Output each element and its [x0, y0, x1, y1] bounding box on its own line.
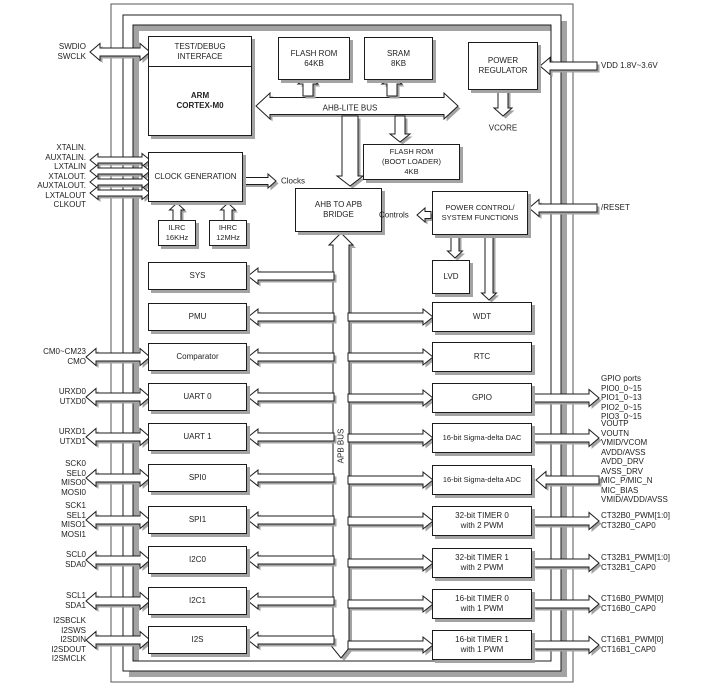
ahb-bus-label: AHB-LITE BUS [323, 104, 378, 113]
block-i2c0-label: I2C0 [189, 555, 206, 565]
pin-label: CT16B1_CAP0 [601, 645, 663, 655]
block-timer16-0-label: 16-bit TIMER 0 with 1 PWM [455, 594, 509, 614]
block-uart1-label: UART 1 [183, 432, 211, 442]
block-uart1: UART 1 [148, 423, 247, 451]
block-clock-generation: CLOCK GENERATION [148, 152, 243, 202]
block-timer32-0: 32-bit TIMER 0 with 2 PWM [432, 506, 532, 536]
pin-group-spi1: SCK1 SEL1 MISO1 MOSI1 [0, 501, 86, 539]
block-power-regulator: POWER REGULATOR [468, 42, 538, 90]
pin-label: SCK1 [0, 501, 86, 511]
block-sys-label: SYS [189, 271, 205, 281]
block-i2s: I2S [148, 626, 247, 654]
pin-label: CLKOUT [0, 200, 86, 210]
pin-label: XTALIN. [0, 143, 86, 153]
pin-label: MIC_P/MIC_N [601, 476, 668, 486]
pin-label: MIC_BIAS [601, 486, 668, 496]
pin-label: MOSI1 [0, 530, 86, 540]
pin-label: AVSS_DRV [601, 467, 668, 477]
pin-label: CM0~CM23 [0, 347, 86, 357]
pin-group-vdd: VDD 1.8V~3.6V [601, 61, 658, 71]
block-rtc: RTC [432, 342, 532, 372]
block-cpu: TEST/DEBUG INTERFACE ARM CORTEX-M0 [148, 36, 252, 136]
pin-group-comparator: CM0~CM23 CMO [0, 347, 86, 366]
pin-group-ct32b0: CT32B0_PWM[1:0] CT32B0_CAP0 [601, 511, 670, 530]
block-test-debug-label: TEST/DEBUG INTERFACE [149, 37, 251, 67]
pin-label: VMID/VCOM [601, 438, 668, 448]
pin-label: SCL0 [0, 550, 86, 560]
block-gpio: GPIO [432, 383, 532, 413]
pin-label: UTXD1 [0, 437, 86, 447]
pin-label: CT16B1_PWM[0] [601, 635, 663, 645]
clocks-label: Clocks [281, 177, 305, 186]
block-timer16-0: 16-bit TIMER 0 with 1 PWM [432, 589, 532, 619]
pin-group-i2c1: SCL1 SDA1 [0, 591, 86, 610]
block-ilrc-label: ILRC 16KHz [166, 223, 189, 243]
block-uart0-label: UART 0 [183, 392, 211, 402]
pin-label: AUXTALIN. [0, 153, 86, 163]
block-flash-rom-label: FLASH ROM 64KB [291, 49, 338, 69]
pin-label: CT32B1_CAP0 [601, 563, 670, 573]
pin-label: PIO2_0~15 [601, 403, 642, 413]
block-i2c1-label: I2C1 [189, 596, 206, 606]
block-boot-rom-label: FLASH ROM (BOOT LOADER) 4KB [382, 147, 441, 177]
block-clock-generation-label: CLOCK GENERATION [154, 172, 236, 182]
block-spi0: SPI0 [148, 464, 247, 492]
block-timer16-1-label: 16-bit TIMER 1 with 1 PWM [455, 635, 509, 655]
block-uart0: UART 0 [148, 383, 247, 411]
pin-label: SEL1 [0, 511, 86, 521]
block-cpu-label: ARM CORTEX-M0 [149, 67, 251, 135]
block-ihrc: IHRC 12MHz [209, 220, 247, 246]
block-power-control: POWER CONTROL/ SYSTEM FUNCTIONS [432, 191, 528, 235]
pin-label: I2SBCLK [0, 616, 86, 626]
block-timer32-1: 32-bit TIMER 1 with 2 PWM [432, 548, 532, 578]
block-ihrc-label: IHRC 12MHz [216, 223, 240, 243]
block-sram-label: SRAM 8KB [387, 49, 410, 69]
pin-label: VOUTP [601, 419, 668, 429]
pin-label: MOSI0 [0, 488, 86, 498]
block-wdt-label: WDT [473, 312, 491, 322]
pin-label: LXTALOUT [0, 191, 86, 201]
block-spi0-label: SPI0 [189, 473, 206, 483]
vcore-label: VCORE [489, 124, 517, 133]
block-ahb-apb-bridge: AHB TO APB BRIDGE [295, 188, 382, 232]
pin-group-gpio: GPIO ports PIO0_0~15 PIO1_0~13 PIO2_0~15… [601, 374, 642, 422]
block-comparator: Comparator [148, 343, 247, 371]
block-dac-label: 16-bit Sigma-delta DAC [443, 433, 522, 443]
apb-bus-label: APB BUS [337, 429, 346, 464]
pin-label: VDD 1.8V~3.6V [601, 61, 658, 71]
pin-group-analog: VOUTP VOUTN VMID/VCOM AVDD/AVSS AVDD_DRV… [601, 419, 668, 505]
pin-group-ct32b1: CT32B1_PWM[1:0] CT32B1_CAP0 [601, 553, 670, 572]
pin-label: LXTALIN [0, 162, 86, 172]
block-rtc-label: RTC [474, 352, 490, 362]
pin-label: SCK0 [0, 459, 86, 469]
pin-label: SWCLK [0, 52, 86, 62]
block-flash-rom: FLASH ROM 64KB [278, 37, 350, 80]
block-ahb-apb-bridge-label: AHB TO APB BRIDGE [315, 200, 362, 220]
pin-label: MISO0 [0, 478, 86, 488]
block-sys: SYS [148, 262, 247, 290]
pin-label: /RESET [601, 203, 630, 213]
pin-label: MISO1 [0, 520, 86, 530]
block-timer32-1-label: 32-bit TIMER 1 with 2 PWM [455, 553, 509, 573]
pin-group-uart0: URXD0 UTXD0 [0, 387, 86, 406]
pin-label: GPIO ports [601, 374, 642, 384]
pin-label: PIO0_0~15 [601, 384, 642, 394]
block-boot-rom: FLASH ROM (BOOT LOADER) 4KB [363, 144, 460, 180]
pin-label: UTXD0 [0, 397, 86, 407]
block-timer32-0-label: 32-bit TIMER 0 with 2 PWM [455, 511, 509, 531]
block-adc-label: 16-bit Sigma-delta ADC [443, 475, 521, 485]
pin-group-ct16b0: CT16B0_PWM[0] CT16B0_CAP0 [601, 594, 663, 613]
controls-label: Controls [379, 211, 409, 220]
block-pmu-label: PMU [189, 312, 207, 322]
pin-group-reset: /RESET [601, 203, 630, 213]
pin-label: VMID/AVDD/AVSS [601, 495, 668, 505]
pin-group-spi0: SCK0 SEL0 MISO0 MOSI0 [0, 459, 86, 497]
soc-block-diagram: TEST/DEBUG INTERFACE ARM CORTEX-M0 FLASH… [0, 0, 709, 686]
block-sram: SRAM 8KB [364, 37, 433, 80]
pin-label: CT32B0_PWM[1:0] [601, 511, 670, 521]
pin-label: URXD1 [0, 427, 86, 437]
pin-label: CT16B0_PWM[0] [601, 594, 663, 604]
pin-group-swd: SWDIO SWCLK [0, 42, 86, 61]
pin-group-xtal: XTALIN. AUXTALIN. LXTALIN XTALOUT. AUXTA… [0, 143, 86, 210]
pin-label: AVDD_DRV [601, 457, 668, 467]
block-power-regulator-label: POWER REGULATOR [478, 56, 527, 76]
pin-label: CT32B1_PWM[1:0] [601, 553, 670, 563]
pin-label: CT16B0_CAP0 [601, 604, 663, 614]
block-ilrc: ILRC 16KHz [158, 220, 196, 246]
pin-group-i2s: I2SBCLK I2SWS I2SDIN I2SDOUT I2SMCLK [0, 616, 86, 664]
block-spi1: SPI1 [148, 506, 247, 534]
block-i2c1: I2C1 [148, 587, 247, 615]
block-spi1-label: SPI1 [189, 515, 206, 525]
block-lvd: LVD [432, 260, 470, 294]
pin-label: URXD0 [0, 387, 86, 397]
pin-label: I2SWS [0, 626, 86, 636]
pin-label: VOUTN [601, 429, 668, 439]
pin-group-uart1: URXD1 UTXD1 [0, 427, 86, 446]
pin-label: XTALOUT. [0, 172, 86, 182]
pin-label: I2SDOUT [0, 645, 86, 655]
block-pmu: PMU [148, 303, 247, 331]
block-wdt: WDT [432, 302, 532, 332]
pin-label: I2SMCLK [0, 654, 86, 664]
pin-group-i2c0: SCL0 SDA0 [0, 550, 86, 569]
pin-label: CMO [0, 357, 86, 367]
block-gpio-label: GPIO [472, 393, 492, 403]
block-i2s-label: I2S [191, 635, 203, 645]
block-comparator-label: Comparator [176, 352, 218, 362]
pin-group-ct16b1: CT16B1_PWM[0] CT16B1_CAP0 [601, 635, 663, 654]
pin-label: AVDD/AVSS [601, 448, 668, 458]
pin-label: PIO1_0~13 [601, 393, 642, 403]
pin-label: SCL1 [0, 591, 86, 601]
block-dac: 16-bit Sigma-delta DAC [432, 423, 532, 453]
pin-label: SWDIO [0, 42, 86, 52]
block-timer16-1: 16-bit TIMER 1 with 1 PWM [432, 630, 532, 660]
block-lvd-label: LVD [444, 272, 459, 282]
pin-label: SEL0 [0, 469, 86, 479]
pin-label: I2SDIN [0, 635, 86, 645]
pin-label: AUXTALOUT. [0, 181, 86, 191]
pin-label: CT32B0_CAP0 [601, 521, 670, 531]
block-power-control-label: POWER CONTROL/ SYSTEM FUNCTIONS [442, 203, 519, 223]
block-i2c0: I2C0 [148, 546, 247, 574]
pin-label: SDA0 [0, 560, 86, 570]
block-adc: 16-bit Sigma-delta ADC [432, 465, 532, 495]
pin-label: SDA1 [0, 601, 86, 611]
